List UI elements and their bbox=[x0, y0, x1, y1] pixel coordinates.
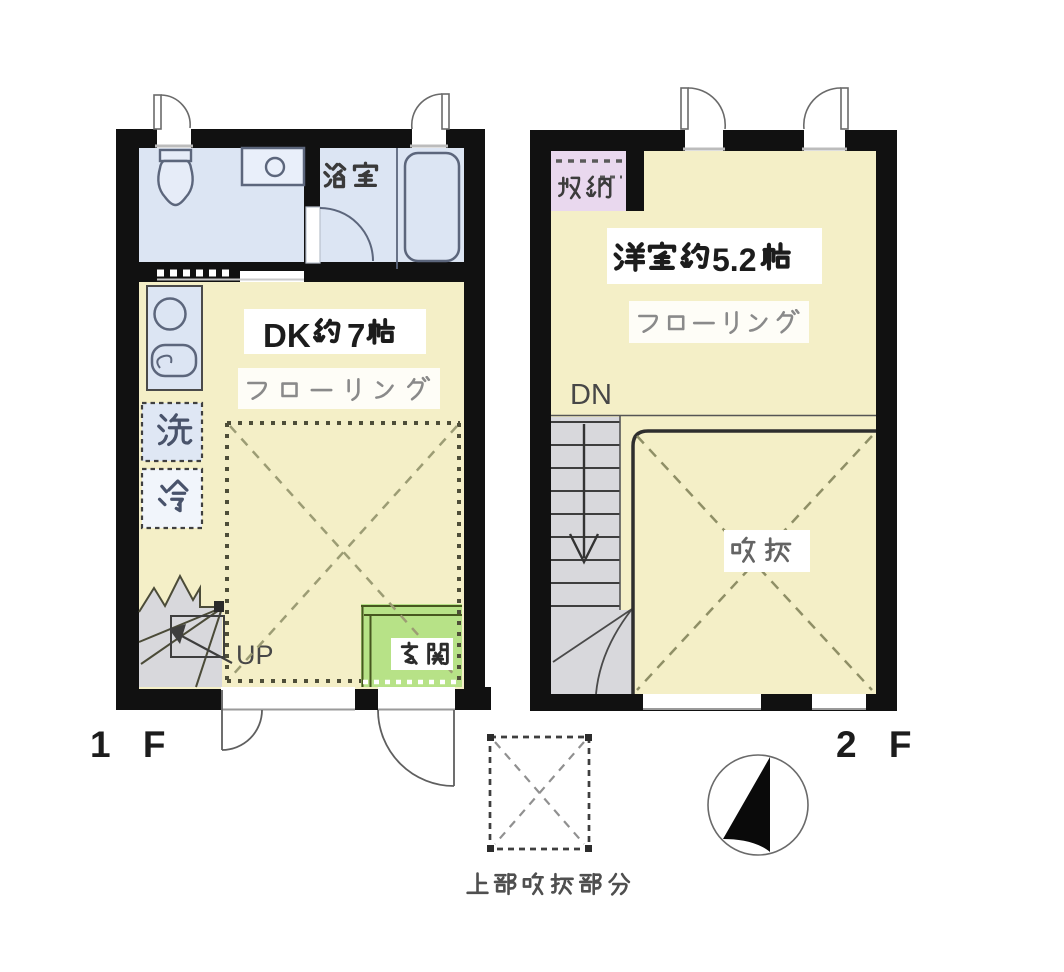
svg-text:DN: DN bbox=[570, 379, 612, 411]
svg-text:UP: UP bbox=[236, 640, 274, 670]
svg-text:5.2: 5.2 bbox=[712, 242, 756, 278]
svg-text:7: 7 bbox=[347, 317, 365, 354]
svg-text:2 F: 2 F bbox=[836, 724, 922, 765]
svg-text:1 F: 1 F bbox=[90, 724, 176, 765]
svg-text:DK: DK bbox=[263, 317, 311, 354]
